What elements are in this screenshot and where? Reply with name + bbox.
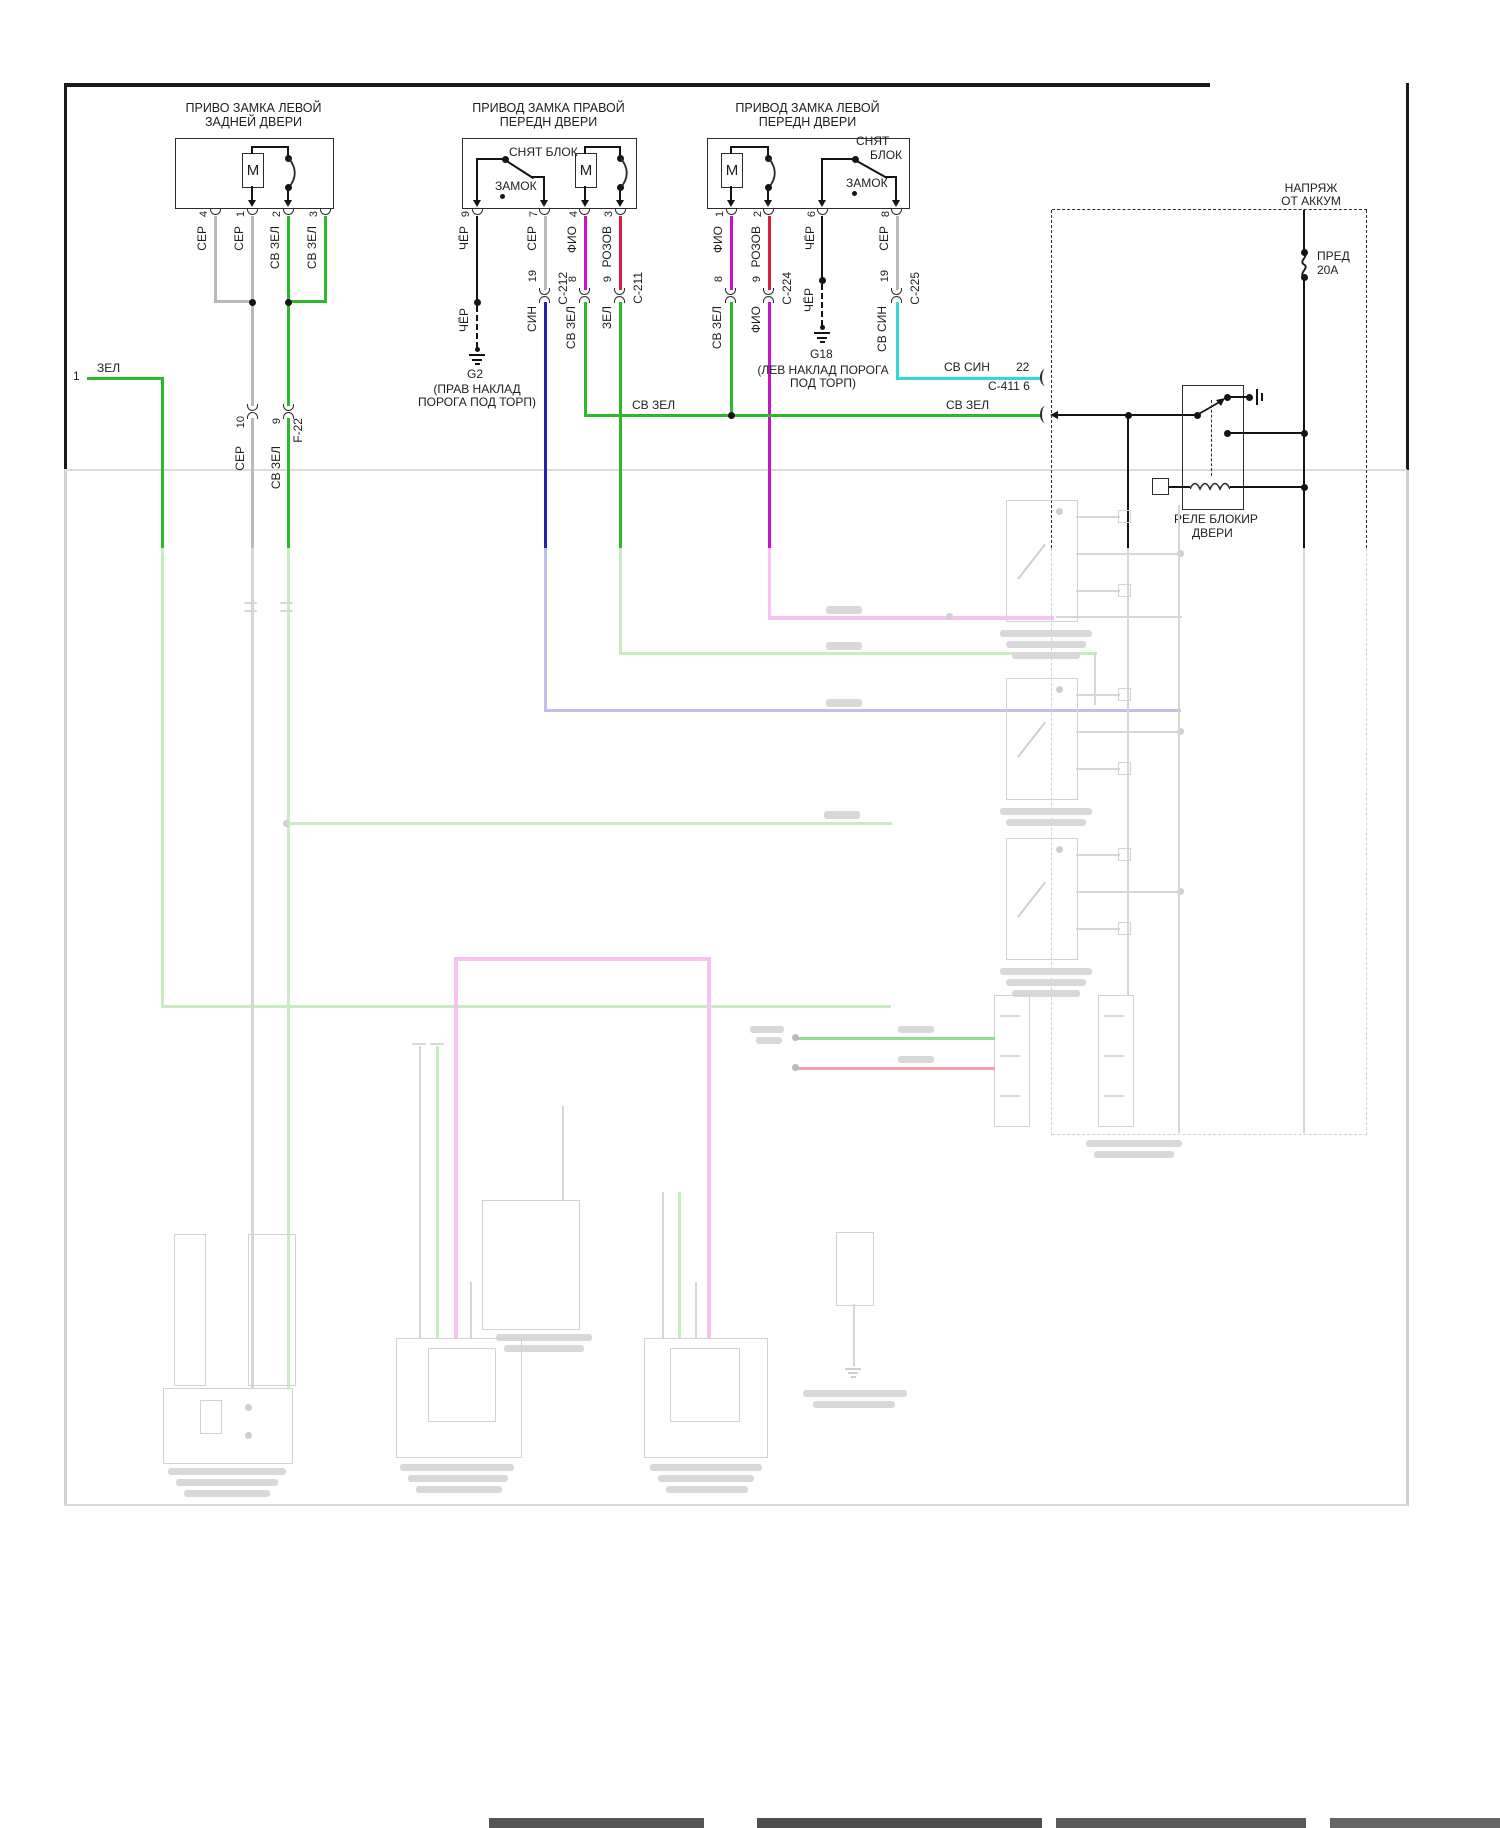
ghost-caption [168,1468,286,1475]
junction-dot [819,277,826,284]
ghost-wire-pink [707,957,711,1339]
wire-ser-pin4 [214,216,217,303]
frame-left [64,83,67,470]
switch-wire [895,176,897,200]
wire-svzel [584,302,587,417]
ghost-connector-mark [244,602,257,604]
ghost-terminal [1118,510,1131,523]
wire-rozov [768,216,771,290]
ghost-caption [803,1390,907,1397]
frame-right [1406,83,1409,470]
wire-fio [730,216,733,290]
connector-pin: 8 [713,276,725,282]
rear-left-lock-title-line2: ЗАДНЕЙ ДВЕРИ [175,115,332,129]
wire-fio [584,216,587,290]
arrow-down-icon [581,200,589,207]
wire-rozov [619,216,622,290]
ghost-wire [562,1106,564,1200]
ghost-tick [1104,1055,1124,1057]
front-right-lock-title-line1: ПРИВОД ЗАМКА ПРАВОЙ [462,101,635,115]
front-right-lock-title-line2: ПЕРЕДН ДВЕРИ [462,115,635,129]
ghost-wire [1303,548,1305,1133]
frame-bottom-faded [64,1504,1407,1506]
wire-color-label: СВ ЗЕЛ [306,226,319,269]
wire-svzel [730,302,733,417]
ghost-dot [245,1404,252,1411]
wire-svzel-down [287,418,290,548]
front-left-lock-title: ПРИВОД ЗАМКА ЛЕВОЙ ПЕРЕДН ДВЕРИ [707,101,908,129]
wire-color-label: СВ ЗЕЛ [711,306,724,349]
motor-icon: M [575,153,597,188]
pin-mark [579,208,590,215]
ghost-wire [619,548,622,655]
link [619,187,621,200]
ghost-caption [1000,808,1092,815]
pin-number: 4 [568,211,580,217]
ghost-text-blob [756,1037,782,1044]
ghost-wire [161,548,164,1006]
ground-caption: (ПРАВ НАКЛАД ПОРОГА ПОД ТОРП) [394,383,560,410]
ghost-dot [792,1034,799,1041]
pin-number: 2 [271,211,283,217]
ghost-wire [436,1046,439,1338]
pin-mark [472,208,483,215]
ghost-wire [544,709,1181,712]
wire-zel-entry-h [87,377,164,380]
pin-mark [891,208,902,215]
wire-color-label: ЧЁР [803,288,816,312]
left-entry-number: 1 [73,370,80,383]
wire-color-label: СВ ЗЕЛ [565,306,578,349]
wire-cher [821,216,823,279]
pin-mark [283,208,294,215]
connector-mark [763,288,774,295]
motor-letter: M [726,162,739,179]
connector-mark [579,288,590,295]
ground-caption-line2: ПОРОГА ПОД ТОРП) [394,396,560,409]
bottom-smudge [1330,1818,1500,1828]
pin-number: 9 [460,211,472,217]
ghost-dot [1056,686,1063,693]
ground-icon [820,341,825,343]
ghost-block [428,1348,496,1422]
ghost-tick [1000,1095,1020,1097]
wire-color-label: РОЗОВ [601,226,614,268]
link [767,187,769,200]
wire-zel-entry-v [161,377,164,549]
ghost-text-blob [826,642,862,650]
ghost-stub [1076,891,1180,893]
connector-mark [891,288,902,295]
wire-color-label: СЕР [878,226,891,251]
ghost-connector-mark [430,1043,444,1045]
power-box-top [1052,209,1367,210]
ghost-connector-mark [280,610,293,612]
wire-fio-down [768,302,771,548]
ghost-terminal [1118,688,1131,701]
pin-number: 7 [528,211,540,217]
relay-ground-dot [1246,394,1253,401]
ghost-wire [161,1005,891,1008]
ghost-tick [1000,1015,1020,1017]
junction-dot [285,299,292,306]
relay-coil-lead [1230,486,1304,488]
power-source-label: НАПРЯЖ ОТ АККУМ [1263,182,1359,209]
ghost-wire [662,1192,664,1338]
ghost-wire [419,1046,421,1338]
relay-coil-terminal [1152,478,1169,495]
ghost-tick [1104,1095,1124,1097]
arrow-down-icon [764,200,772,207]
pin-mark [247,208,258,215]
pin-mark [320,208,331,215]
ghost-text-blob [824,811,860,819]
arrow-down-icon [540,200,548,207]
wire-svzel-pin3 [324,216,327,303]
ghost-text-blob [826,699,862,707]
ground-name: G18 [810,348,833,361]
wire-color-label: ФИО [566,226,579,253]
link [730,186,732,200]
ghost-stub [1076,731,1180,733]
wire-color-label: СВ СИН [876,306,889,352]
link [730,146,769,148]
ghost-stub [1076,590,1120,592]
ground-icon [814,332,830,334]
wire-color-label: ЧЁР [458,308,471,332]
ground-icon [469,354,485,356]
ground-caption-line1: (ПРАВ НАКЛАД [394,383,560,396]
wire-color-label: ЗЕЛ [601,306,614,329]
arrow-down-icon [248,200,256,207]
relay-name: РЕЛЕ БЛОКИР [1174,513,1258,526]
relay-coil-lead [1168,486,1190,488]
ghost-wire [678,1192,681,1338]
frame-right-faded [1406,470,1409,1506]
wire-color-label: ФИО [750,306,763,333]
wire-color-label: ЧЁР [458,226,471,250]
ghost-dot [792,1064,799,1071]
pin-mark [817,208,828,215]
motor-icon: M [242,153,264,188]
link [251,186,253,200]
fuse-rating: 20А [1317,264,1338,277]
pin-mark [210,208,221,215]
ghost-ground-icon [848,1372,858,1374]
bus-svsin-label: СВ СИН [944,361,990,374]
wire-color-label: СВ ЗЕЛ [270,446,283,489]
pin-mark [539,208,550,215]
ghost-module [1006,678,1078,800]
motor-icon: M [721,153,743,188]
switch-state-label: СНЯТ [856,135,889,148]
pin-mark [615,208,626,215]
ghost-module [1006,500,1078,622]
ghost-wire [853,1304,855,1366]
ghost-power-box-right [1366,548,1367,1135]
ghost-tick [1104,1015,1124,1017]
bottom-smudge [757,1818,1042,1828]
ghost-ground-icon [845,1368,861,1370]
wire-cher-dashed [476,306,478,348]
pin-number: 4 [198,211,210,217]
wire-color-label: РОЗОВ [750,226,763,268]
ghost-wire-green [795,1037,995,1040]
ground-name: G2 [467,368,483,381]
ghost-caption [813,1401,895,1408]
wire-color-label: СЕР [233,226,246,251]
ground-icon [475,363,480,365]
relay-contact-wire [1227,396,1248,398]
relay-ground-bar [1256,389,1258,405]
ghost-text-blob [750,1026,784,1033]
power-box-right [1366,210,1367,548]
switch-state-label: БЛОК [870,149,902,162]
link [584,186,586,200]
connector-mark [614,288,625,295]
relay-contact-wire [1227,432,1304,434]
rear-left-lock-title: ПРИВО ЗАМКА ЛЕВОЙ ЗАДНЕЙ ДВЕРИ [175,101,332,129]
pin-number: 1 [714,211,726,217]
ghost-terminal [1118,848,1131,861]
pin-mark [763,208,774,215]
ghost-connector-mark [244,610,257,612]
ghost-stub [1076,928,1120,930]
power-box-left [1051,210,1052,548]
ghost-caption [416,1486,502,1493]
connector-name: C-225 [909,272,922,305]
ghost-stub [1076,553,1180,555]
arrow-down-icon [818,200,826,207]
wire-svzel-bus [584,414,1042,417]
pin-number: 6 [806,211,818,217]
ghost-connector-mark [412,1043,426,1045]
ghost-stub [1076,694,1120,696]
wire-color-label: СИН [526,306,539,332]
motor-letter: M [580,162,593,179]
ghost-terminal [1118,922,1131,935]
connector-name: C-224 [781,272,794,305]
ground-icon [472,359,482,361]
wire-ser [896,216,899,290]
junction-dot [728,412,735,419]
ghost-junction-dot [946,613,953,620]
pin-number: 3 [603,211,615,217]
left-entry-wire-label: ЗЕЛ [97,362,120,375]
wire-down-from-junction [1127,415,1129,548]
arrow-down-icon [892,200,900,207]
relay-ground-bar [1261,393,1263,401]
switch-wire [543,176,545,200]
wiring-diagram-page: 1 ЗЕЛ ПРИВО ЗАМКА ЛЕВОЙ ЗАДНЕЙ ДВЕРИ M 4… [0,0,1500,1828]
ghost-stub [1076,854,1120,856]
bus-svsin-pin: 22 [1016,361,1029,374]
relay-link-dashed [1211,400,1212,476]
ghost-caption [1006,641,1086,648]
switch-wire [821,158,823,200]
relay-name: ДВЕРИ [1192,527,1233,540]
frame-left-faded [64,470,67,1506]
ghost-block [836,1232,874,1306]
bus-svzel-label-mid: СВ ЗЕЛ [632,399,675,412]
bus-svsin-connector: C-411 6 [988,380,1030,393]
arrow-down-icon [727,200,735,207]
junction-dot [474,299,481,306]
wire-cher [476,216,478,302]
ground-dot [475,347,480,352]
contact-dot [500,194,505,199]
link [584,146,621,148]
ghost-wire [544,548,547,712]
arrow-down-icon [473,200,481,207]
power-source-line1: НАПРЯЖ [1263,182,1359,195]
pin-number: 2 [752,211,764,217]
pin-number: 8 [880,211,892,217]
ghost-caption [658,1475,754,1482]
ghost-dot [245,1432,252,1439]
wire-color-label: СЕР [196,226,209,251]
power-source-line2: ОТ АККУМ [1263,195,1359,208]
pin-mark [726,208,737,215]
front-right-lock-title: ПРИВОД ЗАМКА ПРАВОЙ ПЕРЕДН ДВЕРИ [462,101,635,129]
ghost-caption [1094,1151,1174,1158]
connector-pin: 9 [271,418,283,424]
fuse-name: ПРЕД [1317,250,1350,263]
ghost-caption [1086,1140,1182,1147]
connector-name: C-211 [632,272,645,304]
rear-left-lock-title-line1: ПРИВО ЗАМКА ЛЕВОЙ [175,101,332,115]
switch-state-label: ЗАМОК [846,177,888,190]
wire-zel [619,302,622,548]
ghost-module [1006,838,1078,960]
switch-state-label: СНЯТ БЛОК [509,146,578,159]
ghost-block [482,1200,580,1330]
wire-sin [544,302,547,548]
switch-state-label: ЗАМОК [495,180,537,193]
ghost-block [670,1348,740,1422]
motor-letter: M [247,162,260,179]
ghost-ground-icon [851,1376,856,1378]
link [287,187,289,200]
connector-pin: 10 [235,416,247,428]
ground-icon [817,337,827,339]
arrow-down-icon [284,200,292,207]
connector-bracket [1040,406,1049,423]
wire-svzel-merge [287,300,327,303]
switch-wire [476,158,505,160]
ghost-block [248,1234,296,1386]
ghost-terminal [1118,584,1131,597]
ghost-caption [666,1486,748,1493]
ghost-power-box-bottom [1052,1134,1367,1135]
front-left-lock-title-line2: ПЕРЕДН ДВЕРИ [707,115,908,129]
ghost-caption [1000,968,1092,975]
ghost-wire [768,548,771,617]
ghost-wire [1094,652,1096,705]
wire-color-label: СВ ЗЕЛ [269,226,282,269]
wire-ser-pin1 [251,216,254,406]
ghost-block [174,1234,206,1386]
connector-bracket [1040,369,1049,386]
ghost-caption [1006,819,1086,826]
connector-pin: 8 [567,276,579,282]
ghost-wire [287,822,892,825]
connector-mark [539,288,550,295]
bus-svzel-label-right: СВ ЗЕЛ [946,399,989,412]
ghost-wire-pink [454,957,458,1339]
ground-caption-line2: ПОД ТОРП) [740,377,906,390]
connector-pin: 19 [879,270,891,282]
frame-top [64,83,1210,87]
relay-coil-icon [1190,478,1230,491]
ghost-wire [470,1282,472,1338]
ghost-caption [400,1464,514,1471]
connector-mark [283,404,294,411]
ghost-wire-pink [454,957,711,961]
ghost-motor [200,1400,222,1434]
front-left-lock-title-line1: ПРИВОД ЗАМКА ЛЕВОЙ [707,101,908,115]
connector-pin: 19 [527,270,539,282]
connector-name: F-22 [292,418,305,443]
pin-number: 1 [235,211,247,217]
link [251,146,289,148]
wire-color-label: ФИО [712,226,725,253]
connector-pin: 9 [751,276,763,282]
wire-color-label: СЕР [234,446,247,471]
ghost-caption [184,1490,270,1497]
ghost-dot [1056,508,1063,515]
ghost-wire-red [795,1067,995,1070]
ghost-text-blob [898,1056,934,1063]
junction-dot [249,299,256,306]
connector-mark [247,404,258,411]
wire-color-label: СЕР [526,226,539,251]
bottom-smudge [1056,1818,1306,1828]
wire-ser [544,216,547,290]
power-rail [1303,210,1305,252]
ghost-caption [408,1475,508,1482]
ghost-caption [176,1479,278,1486]
ghost-connector-mark [280,602,293,604]
ghost-caption [1012,652,1080,659]
contact-dot [852,191,857,196]
arrow-down-icon [616,200,624,207]
ghost-text-blob [826,606,862,614]
ghost-caption [1006,979,1086,986]
ghost-wire [695,1282,697,1338]
wire-svsin-v [896,302,899,379]
ghost-module [163,1388,293,1464]
pin-number: 3 [308,211,320,217]
connector-mark [725,288,736,295]
ghost-text-blob [898,1026,934,1033]
ghost-caption [650,1464,762,1471]
ghost-dot [1056,846,1063,853]
connector-pin: 9 [602,276,614,282]
bottom-smudge [489,1818,704,1828]
ghost-stub [1076,516,1120,518]
ghost-tick [1000,1055,1020,1057]
switch-wire [821,158,855,160]
wire-color-label: ЧЁР [804,226,817,250]
power-rail [1303,279,1305,548]
wire-cher-dashed [821,284,823,326]
wire-ser-down [251,418,254,548]
ghost-rail [1178,505,1180,1133]
wire-svzel-pin2 [287,216,290,406]
ground-dot [820,325,825,330]
ground-caption-line1: (ЛЕВ НАКЛАД ПОРОГА [740,364,906,377]
